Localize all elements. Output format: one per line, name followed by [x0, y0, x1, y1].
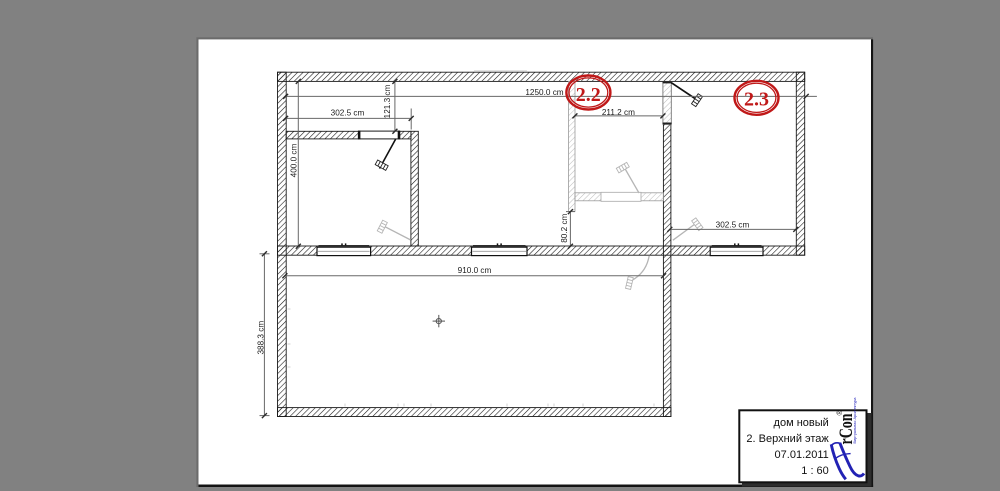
svg-text:2.3: 2.3 — [744, 88, 769, 110]
svg-text:302.5 cm: 302.5 cm — [331, 108, 365, 117]
svg-text:1250.0 cm: 1250.0 cm — [525, 88, 563, 97]
svg-text:910.0 cm: 910.0 cm — [458, 266, 492, 275]
svg-text:80.2 cm: 80.2 cm — [560, 213, 569, 242]
svg-text:400.0 cm: 400.0 cm — [289, 143, 298, 177]
svg-text:Виртуальная Архитектура: Виртуальная Архитектура — [853, 397, 857, 444]
svg-text:2. Верхний этаж: 2. Верхний этаж — [746, 433, 829, 445]
svg-text:07.01.2011: 07.01.2011 — [775, 449, 829, 461]
svg-text:211.2 cm: 211.2 cm — [602, 108, 635, 117]
svg-text:®: ® — [835, 410, 844, 416]
svg-text:302.5 cm: 302.5 cm — [716, 221, 750, 230]
svg-text:дом новый: дом новый — [774, 417, 829, 429]
svg-text:121.3 cm: 121.3 cm — [383, 84, 392, 118]
svg-text:388.3 cm: 388.3 cm — [257, 321, 266, 355]
svg-text:2.2: 2.2 — [576, 84, 601, 106]
svg-text:1 : 60: 1 : 60 — [801, 465, 829, 477]
